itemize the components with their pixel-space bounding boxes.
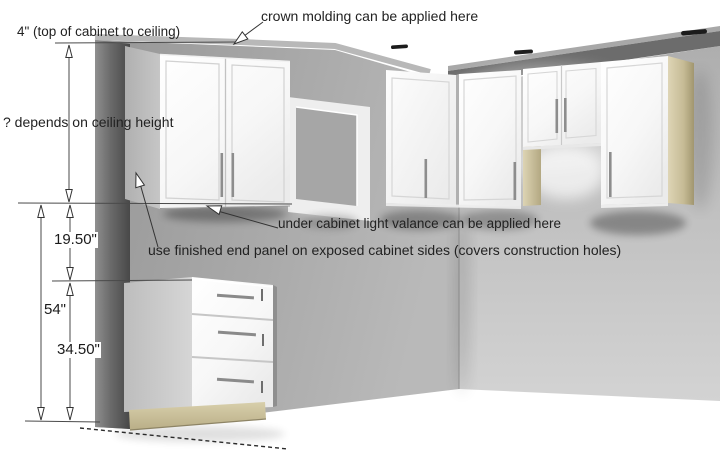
- recessed-light-icon: [514, 49, 533, 54]
- dimension-arrow-icon: [66, 190, 72, 203]
- dimension-label-34-50: 34.50": [56, 342, 101, 358]
- dimension-arrow-icon: [67, 283, 73, 296]
- corner-shadow: [455, 205, 469, 395]
- corner-wall-cabinet: [386, 70, 456, 206]
- annotation-end-panel: use finished end panel on exposed cabine…: [148, 243, 621, 258]
- dimension-arrow-icon: [67, 205, 73, 218]
- right-wall-cabinet: [601, 56, 668, 208]
- over-range-wall-cabinet: [523, 62, 601, 150]
- cabinet-handle: [609, 152, 612, 197]
- kitchen-cabinet-diagram: 4" (top of cabinet to ceiling) crown mol…: [0, 0, 720, 457]
- dimension-label-54: 54": [43, 302, 67, 318]
- cabinet-handle: [221, 153, 224, 197]
- base-cabinet: [124, 277, 277, 430]
- dimension-arrow-icon: [66, 45, 72, 58]
- cabinet-handle: [556, 99, 559, 133]
- recessed-light-icon: [391, 44, 408, 49]
- dimension-label-19-50: 19.50": [53, 232, 98, 248]
- cabinet-side-panel: [124, 277, 192, 412]
- dimension-arrow-icon: [38, 408, 44, 421]
- dimension-arrow-icon: [67, 268, 73, 281]
- cabinet-handle: [425, 159, 428, 198]
- cabinet-handle: [564, 98, 567, 132]
- annotation-crown-molding: crown molding can be applied here: [261, 9, 478, 24]
- dimension-arrow-icon: [67, 408, 73, 421]
- floor-line: [25, 421, 100, 422]
- unfinished-end-panel: [668, 56, 694, 205]
- exposed-unfinished-side: [523, 144, 541, 206]
- annotation-ceiling-height: ? depends on ceiling height: [3, 115, 173, 130]
- cabinet-handle: [232, 153, 235, 197]
- annotation-top-gap: 4" (top of cabinet to ceiling): [17, 25, 180, 40]
- doorway-trim: [288, 97, 370, 221]
- annotation-valance: under cabinet light valance can be appli…: [278, 217, 561, 232]
- dimension-arrow-icon: [38, 205, 44, 218]
- cabinet-handle: [514, 162, 517, 200]
